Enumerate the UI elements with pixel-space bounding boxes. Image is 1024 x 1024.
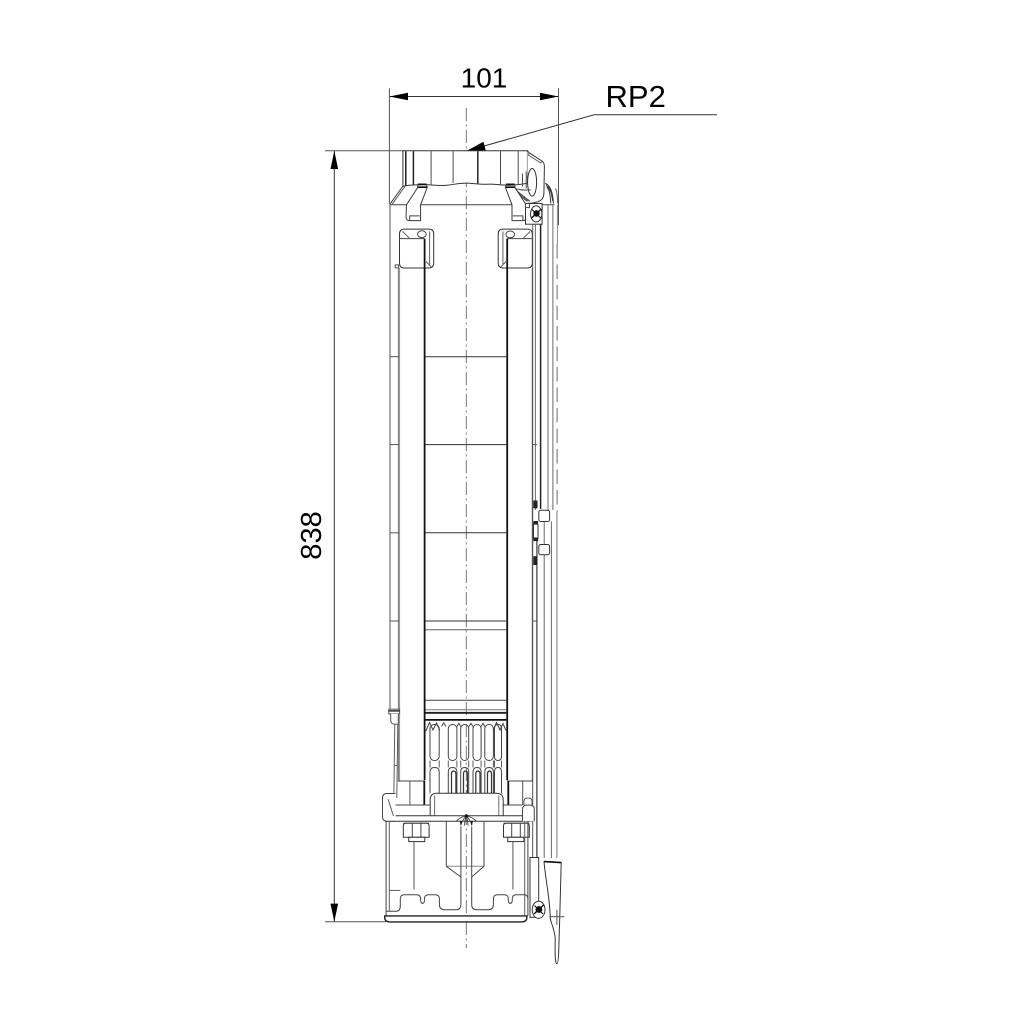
- svg-text:RP2: RP2: [606, 79, 666, 114]
- svg-text:101: 101: [461, 63, 508, 94]
- svg-text:838: 838: [296, 511, 328, 559]
